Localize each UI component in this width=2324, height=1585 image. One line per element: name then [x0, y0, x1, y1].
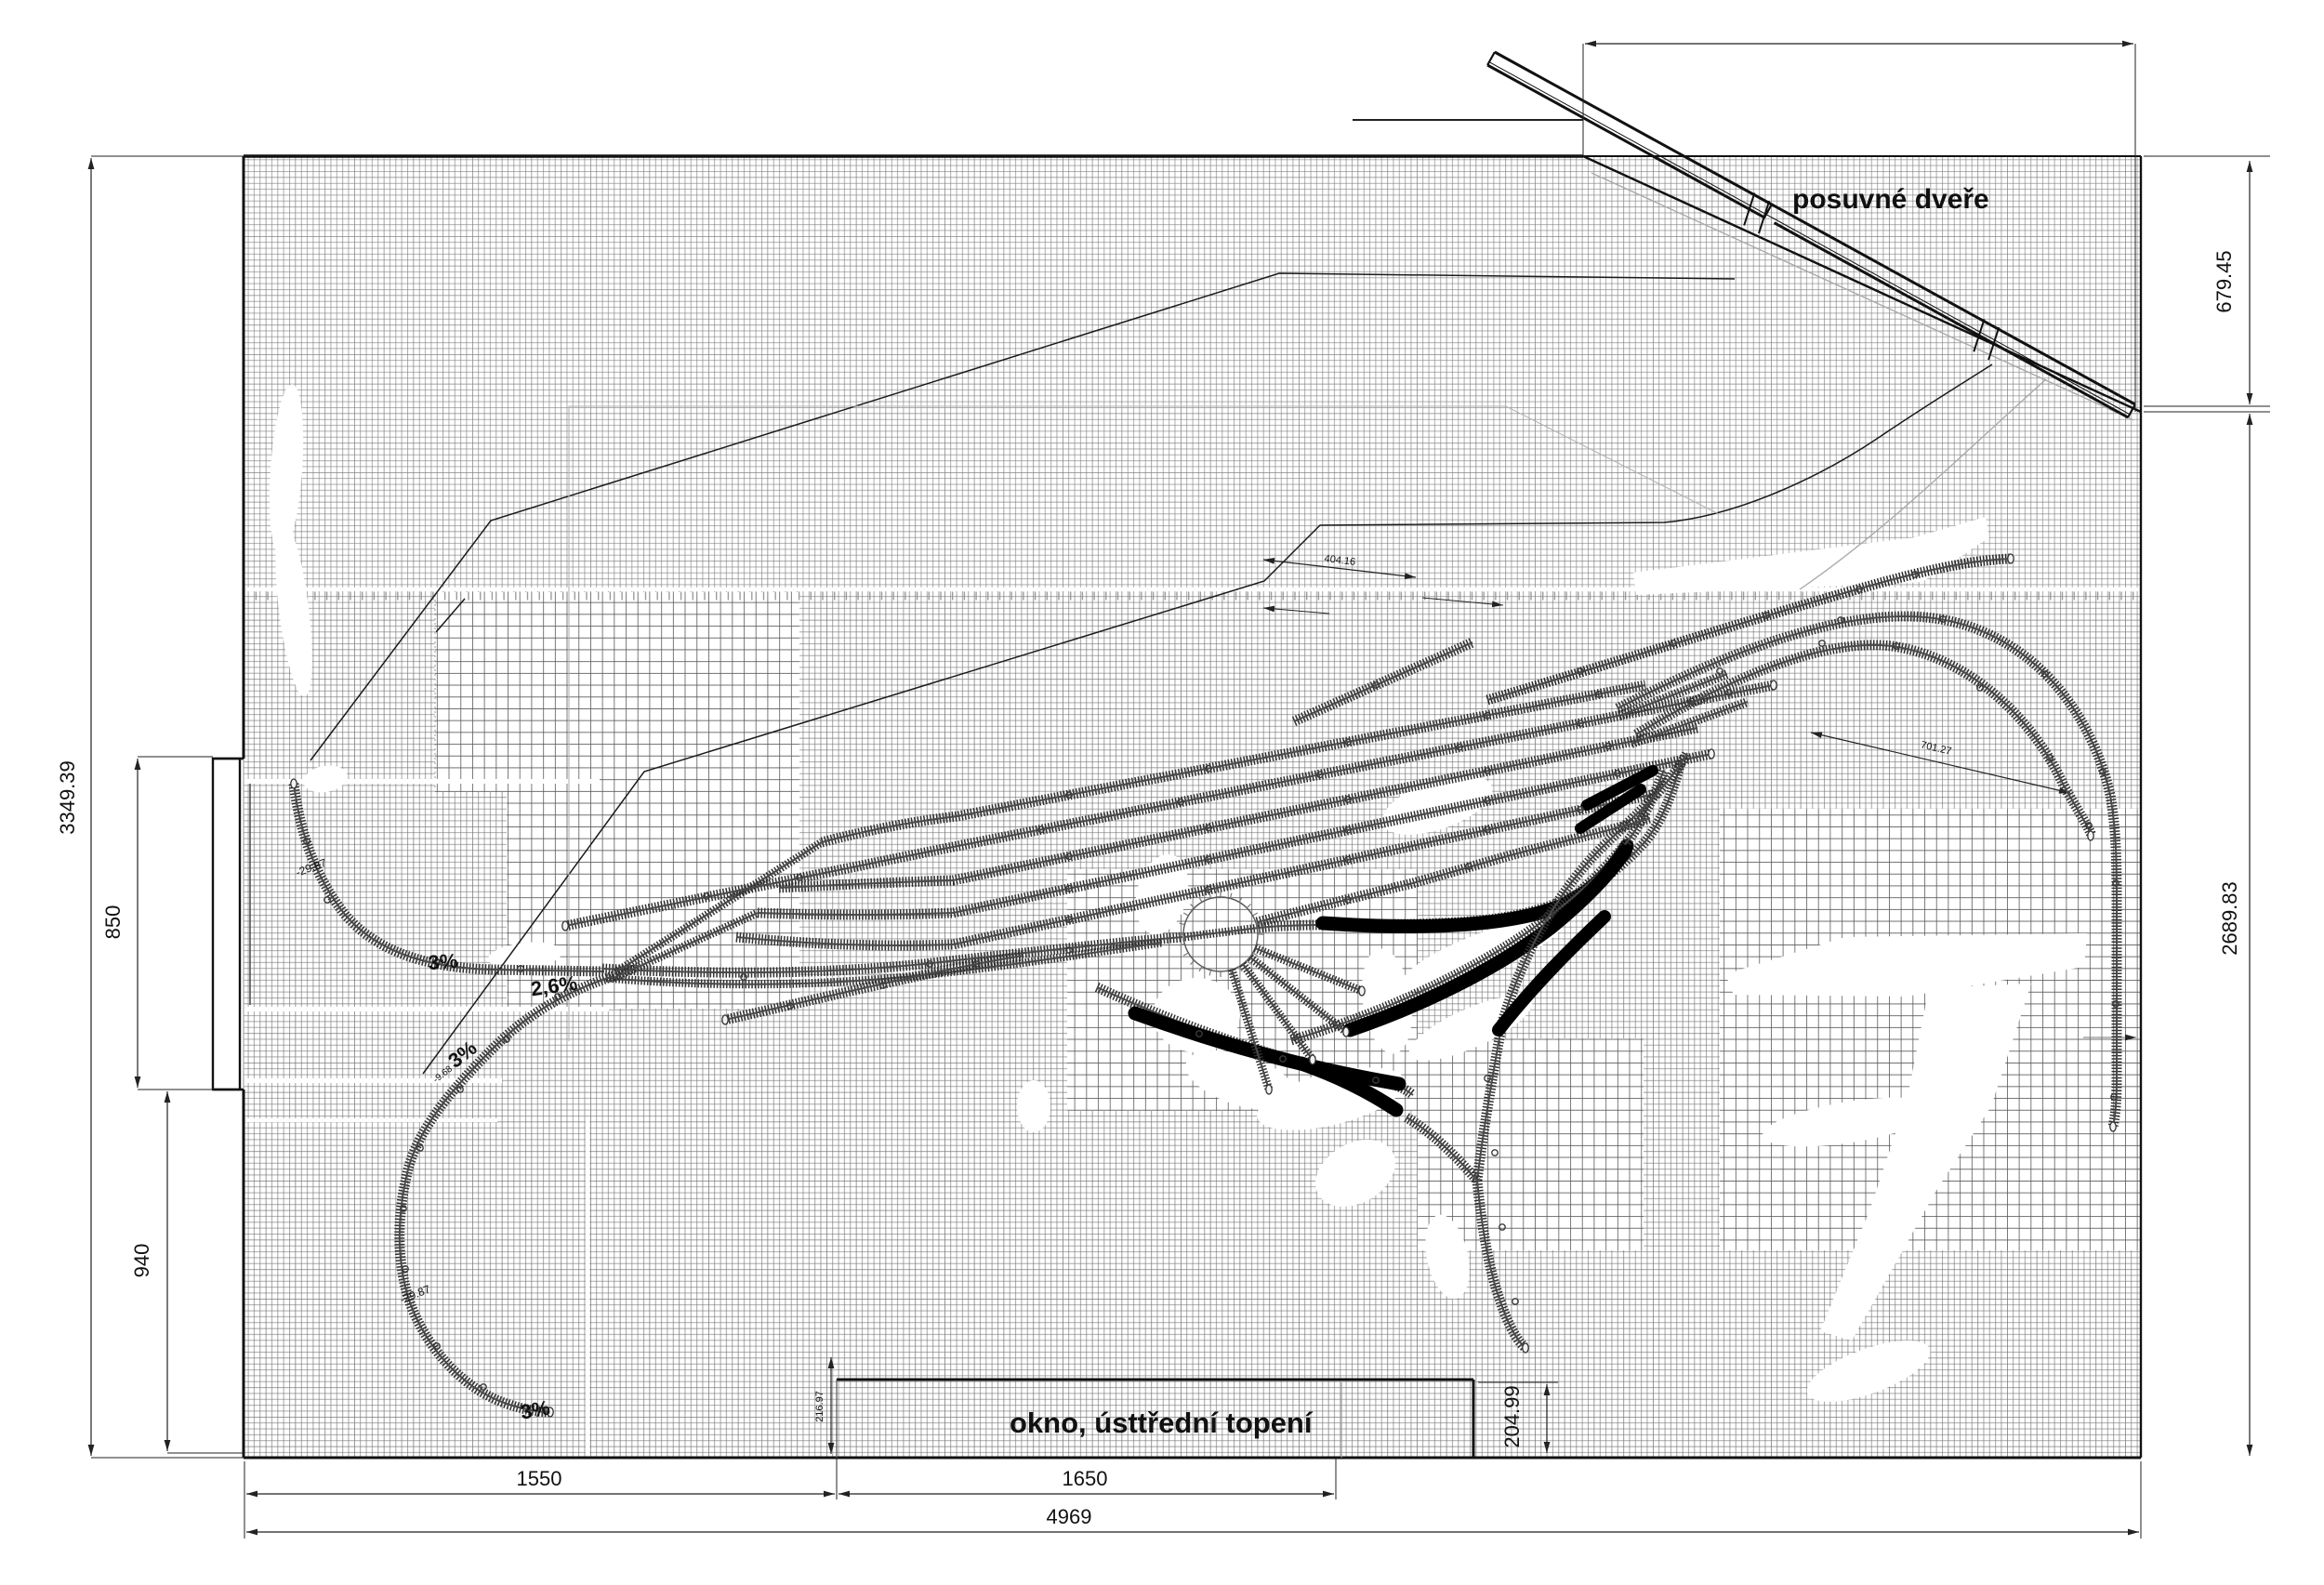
svg-text:posuvné dveře: posuvné dveře: [1792, 184, 1989, 215]
svg-text:2689.83: 2689.83: [2218, 881, 2241, 956]
svg-text:3%: 3%: [428, 949, 458, 974]
svg-text:204.99: 204.99: [1500, 1385, 1524, 1447]
svg-text:216.97: 216.97: [814, 1391, 825, 1422]
svg-text:1650: 1650: [1063, 1467, 1108, 1490]
svg-text:4969: 4969: [1047, 1505, 1092, 1528]
svg-text:679.45: 679.45: [2212, 250, 2236, 312]
svg-text:3349.39: 3349.39: [56, 760, 79, 835]
svg-text:1550: 1550: [517, 1467, 562, 1490]
svg-text:940: 940: [130, 1244, 153, 1278]
svg-text:850: 850: [101, 905, 125, 940]
svg-text:okno, ústtřední topení: okno, ústtřední topení: [1010, 1407, 1314, 1439]
